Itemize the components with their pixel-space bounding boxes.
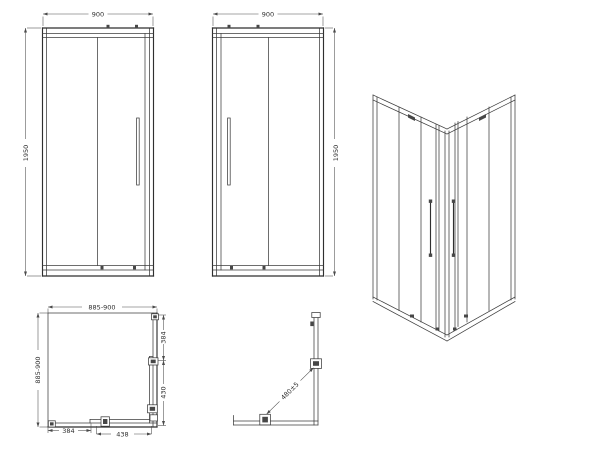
shower-enclosure-drawing: 900 1950 bbox=[0, 0, 600, 451]
plan-depth-dimension: 885-900 bbox=[34, 313, 47, 427]
dim-label-side-fixed: 384 bbox=[160, 331, 168, 343]
handle-knob bbox=[429, 200, 432, 203]
front-glass-wall bbox=[48, 415, 158, 427]
right-panel bbox=[447, 95, 515, 341]
side-glass-wall bbox=[148, 313, 159, 427]
top-roller-mark bbox=[135, 25, 138, 28]
handle-knob bbox=[452, 200, 455, 203]
corner-perspective-view bbox=[373, 95, 515, 341]
diagonal-entry-dimension: 480±5 bbox=[267, 368, 314, 414]
top-roller-mark bbox=[257, 25, 260, 28]
front-door-dimension: 438 bbox=[97, 426, 152, 438]
corner-post bbox=[445, 131, 449, 337]
top-roller-mark bbox=[107, 25, 110, 28]
height-dimension: 1950 bbox=[325, 28, 340, 276]
dim-label-front-fixed: 384 bbox=[62, 427, 74, 435]
dim-label-width: 900 bbox=[92, 10, 104, 18]
rail-bracket bbox=[408, 114, 415, 121]
dim-label-height: 1950 bbox=[22, 145, 30, 162]
door-handle bbox=[137, 118, 140, 185]
left-panel bbox=[373, 95, 447, 341]
wall-profile-cap bbox=[312, 313, 320, 318]
width-dimension: 900 bbox=[43, 10, 153, 26]
technical-drawing-canvas: 900 1950 bbox=[0, 0, 600, 451]
door-handles bbox=[429, 200, 455, 257]
bottom-roller-mark bbox=[230, 266, 233, 269]
side-door-dimension: 430 bbox=[158, 361, 168, 426]
corner-detail-view: 480±5 bbox=[234, 313, 322, 426]
corner-bracket bbox=[150, 415, 158, 421]
top-roller-mark bbox=[228, 25, 231, 28]
dim-label-front-door: 438 bbox=[116, 430, 128, 438]
front-elevation-left-view: 900 1950 bbox=[22, 10, 154, 276]
width-dimension: 900 bbox=[213, 10, 323, 26]
dim-label-plan-depth: 885-900 bbox=[34, 356, 42, 383]
front-elevation-right-view: 900 1950 bbox=[213, 10, 340, 276]
door-handle bbox=[228, 118, 231, 185]
front-wall-section bbox=[234, 414, 319, 425]
rail-bracket bbox=[479, 114, 486, 121]
side-fixed-dimension: 384 bbox=[158, 315, 168, 361]
tray-outline bbox=[48, 313, 157, 427]
dim-label-plan-width: 885-900 bbox=[88, 303, 115, 311]
side-wall-section bbox=[310, 313, 321, 426]
dim-label-width: 900 bbox=[262, 10, 274, 18]
handle-knob bbox=[429, 254, 432, 257]
bottom-roller-mark bbox=[263, 266, 266, 269]
dim-label-side-door: 430 bbox=[160, 386, 168, 398]
plan-width-dimension: 885-900 bbox=[48, 303, 157, 312]
handle-knob bbox=[452, 254, 455, 257]
height-dimension: 1950 bbox=[22, 28, 41, 276]
dim-label-diagonal-entry: 480±5 bbox=[279, 380, 300, 401]
bottom-roller-mark bbox=[133, 266, 136, 269]
dim-label-height: 1950 bbox=[332, 145, 340, 162]
plan-view: 885-900 885-900 384 430 384 bbox=[34, 303, 168, 438]
bottom-roller-mark bbox=[101, 266, 104, 269]
